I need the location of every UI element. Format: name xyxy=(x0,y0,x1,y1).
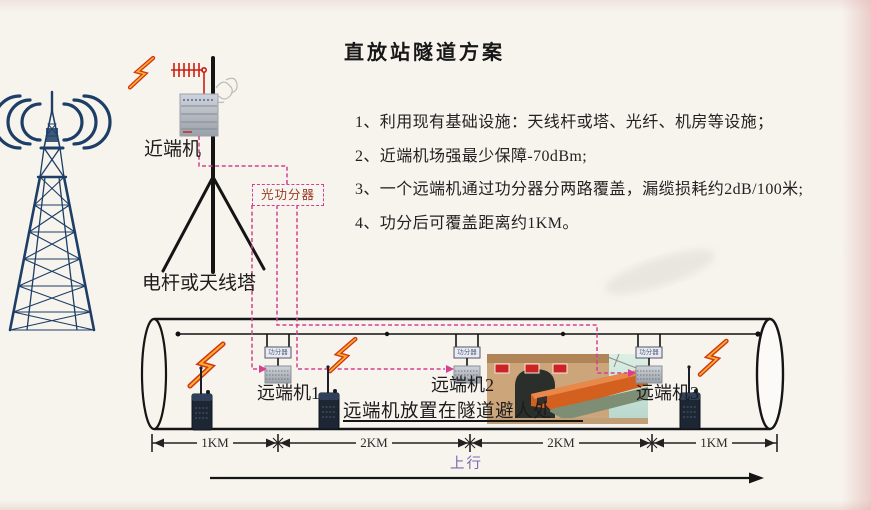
remote-unit-3 xyxy=(636,334,662,383)
remote-unit-3-label: 远端机3 xyxy=(636,383,699,404)
tunnel-left-portal xyxy=(142,319,166,429)
remote-unit-1 xyxy=(265,334,291,383)
distance-label: 1KM xyxy=(197,436,233,451)
radio-tower-icon xyxy=(0,92,110,330)
note-line: 3、一个远端机通过功分器分两路覆盖，漏缆损耗约2dB/100米; xyxy=(355,181,803,199)
note-line: 2、近端机场强最少保障-70dBm; xyxy=(355,148,587,166)
pole-label: 电杆或天线塔 xyxy=(142,273,256,295)
diagram-canvas: 直放站隧道方案 1、利用现有基础设施：天线杆或塔、光纤、机房等设施； 2、近端机… xyxy=(0,0,871,510)
mini-splitter-label: 功分器 xyxy=(455,348,479,358)
dimension-line xyxy=(152,434,777,452)
note-line: 1、利用现有基础设施：天线杆或塔、光纤、机房等设施； xyxy=(355,114,773,132)
note-line: 4、功分后可覆盖距离约1KM。 xyxy=(355,215,579,233)
remote-unit-1-label: 远端机1 xyxy=(257,383,320,404)
lightning-icon xyxy=(190,344,223,386)
walkie-talkie-icon xyxy=(192,366,212,430)
lightning-icon xyxy=(130,58,153,87)
page-title: 直放站隧道方案 xyxy=(344,42,505,65)
distance-label: 2KM xyxy=(356,436,392,451)
uplink-arrow xyxy=(210,473,764,484)
near-end-unit-label: 近端机 xyxy=(144,139,201,161)
tunnel-right-portal xyxy=(757,319,783,429)
walkie-talkie-icon xyxy=(319,365,339,429)
distance-label: 2KM xyxy=(543,436,579,451)
antenna-pole xyxy=(163,58,264,272)
placement-note-label: 远端机放置在隧道避人处 xyxy=(343,402,552,423)
distance-label: 1KM xyxy=(696,436,732,451)
lightning-icon xyxy=(700,341,726,375)
lightning-icon xyxy=(330,339,355,371)
near-end-unit-box xyxy=(180,94,218,136)
uplink-label: 上行 xyxy=(450,456,483,473)
scan-smudge xyxy=(601,241,720,303)
leaky-cable xyxy=(176,331,761,336)
fiber-lines xyxy=(199,136,627,373)
mini-splitter-label: 功分器 xyxy=(637,348,661,358)
mini-splitter-label: 功分器 xyxy=(266,348,290,358)
remote-unit-2-label: 远端机2 xyxy=(431,375,494,396)
yagi-antenna-icon xyxy=(171,63,206,94)
diagram-art xyxy=(0,0,871,510)
optical-splitter-box: 光功分器 xyxy=(252,184,324,206)
